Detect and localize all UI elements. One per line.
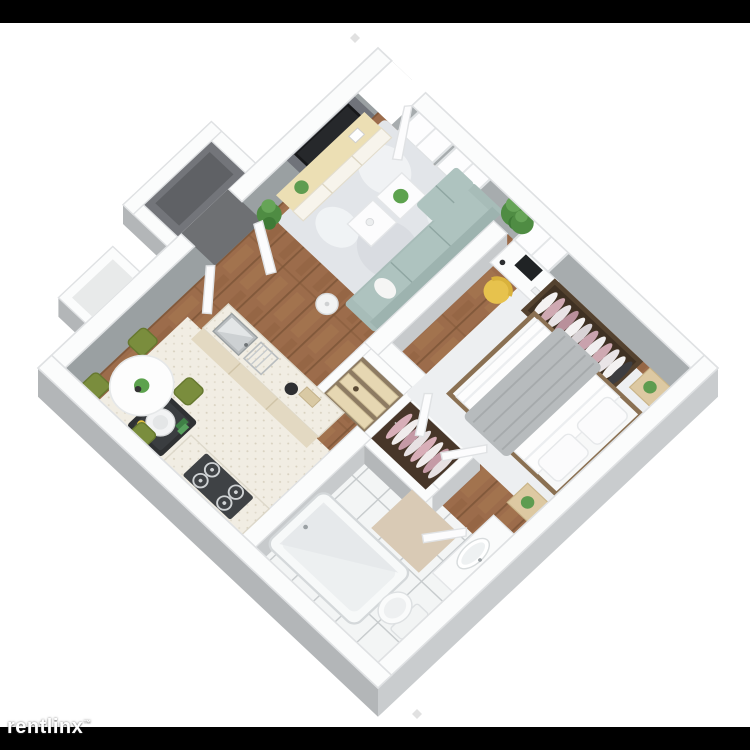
artifact-mark xyxy=(350,33,360,43)
letterbox-top xyxy=(0,0,750,23)
floorplan-scene xyxy=(0,0,750,750)
rentlinx-logo: rentlinx™ xyxy=(7,716,92,739)
letterbox-bottom xyxy=(0,727,750,750)
trademark-symbol: ™ xyxy=(83,718,92,727)
floorplan-image: rentlinx™ xyxy=(0,0,750,750)
logo-text: rentlinx xyxy=(7,716,83,738)
artifact-mark xyxy=(412,709,422,719)
